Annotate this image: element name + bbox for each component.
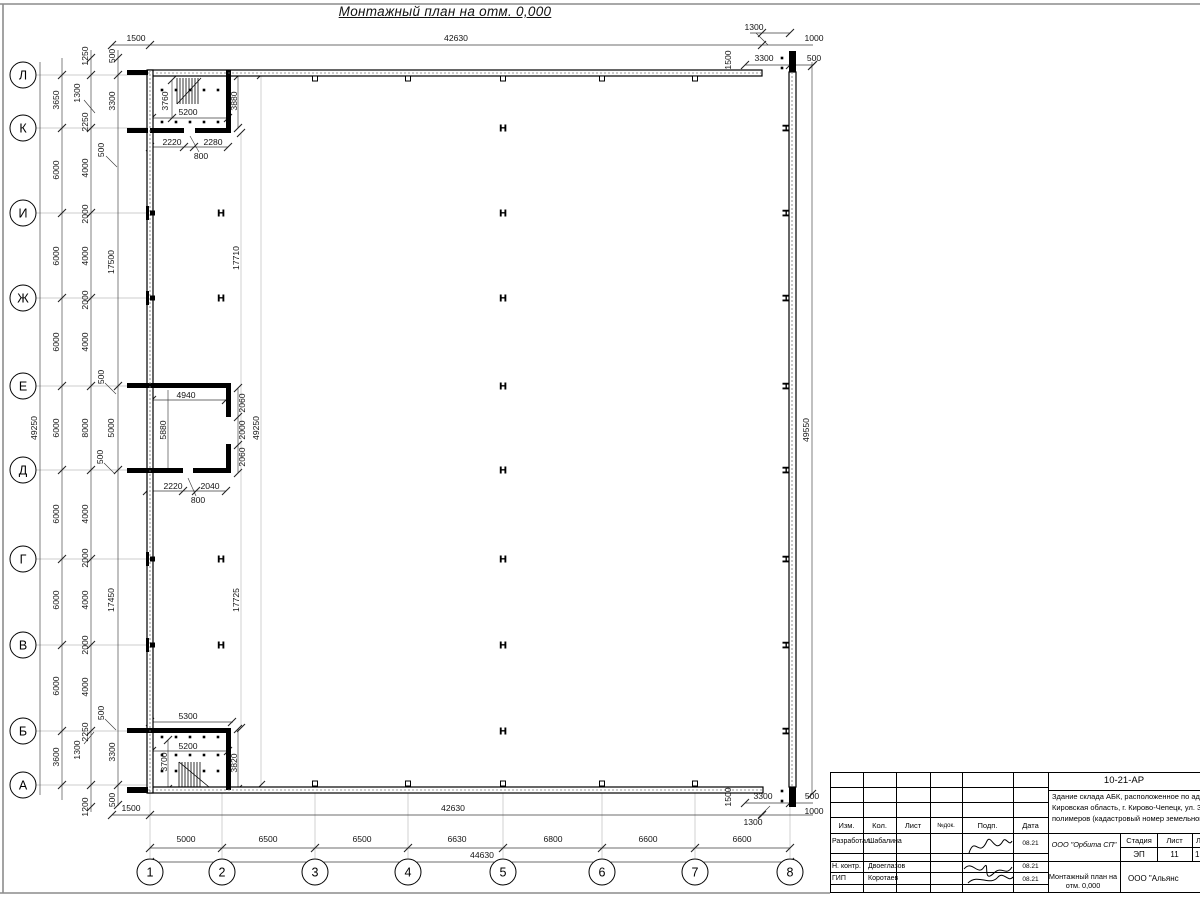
dim-label: 4000	[80, 158, 90, 177]
column-h-icon: H	[499, 727, 507, 738]
column-tab	[313, 781, 318, 786]
dim-label: 5880	[158, 420, 168, 439]
dim-label: 1300	[743, 817, 762, 827]
dim-label: 3300	[753, 791, 772, 801]
dim-label: 500	[805, 791, 820, 801]
wall-segment	[226, 388, 231, 417]
dim-label: 42630	[441, 803, 465, 813]
axis-label: 6	[599, 865, 606, 879]
wall-segment	[127, 383, 148, 388]
dim-label: 500	[95, 450, 105, 465]
dim-label: 3760	[160, 91, 170, 110]
dim-label: 4940	[176, 390, 195, 400]
column-h-icon: H	[499, 466, 507, 477]
column-h-icon: H	[499, 124, 507, 135]
dimension-lines	[40, 33, 813, 862]
column-h-icon: H	[780, 382, 791, 390]
dim-label: 49550	[801, 418, 811, 442]
column-h-icon: H	[780, 641, 791, 649]
wall-pilaster	[150, 643, 155, 648]
dim-label: 2000	[237, 420, 247, 439]
dim-label: 42630	[444, 33, 468, 43]
column-h-icon: H	[217, 641, 225, 652]
wall-segment	[789, 51, 796, 72]
dim-label: 6000	[51, 504, 61, 523]
dim-label: 3600	[51, 747, 61, 766]
wall-pilaster	[146, 638, 149, 652]
column-h-icon: H	[780, 124, 791, 132]
stairs	[177, 78, 209, 787]
column-h-icon: H	[499, 209, 507, 220]
dim-label: 800	[191, 495, 206, 505]
dim-label: 6000	[51, 676, 61, 695]
axis-label: Ж	[17, 291, 29, 305]
dimension-ticks	[58, 29, 817, 866]
axis-label: 5	[500, 865, 507, 879]
dim-label: 1500	[723, 50, 733, 69]
walls	[127, 51, 796, 807]
dim-label: 5000	[106, 418, 116, 437]
axis-label: Б	[19, 724, 27, 738]
column-tab	[406, 76, 411, 81]
dim-label: 4000	[80, 332, 90, 351]
axis-label: Е	[19, 379, 27, 393]
dim-label: 6500	[352, 834, 371, 844]
wall-outline	[789, 72, 796, 787]
column-tab	[600, 76, 605, 81]
wall-pilaster	[150, 296, 155, 301]
dim-label: 4000	[80, 590, 90, 609]
column-tab	[501, 76, 506, 81]
dim-label: 1000	[804, 806, 823, 816]
column-h-icon: H	[780, 727, 791, 735]
column-h-icon: H	[499, 294, 507, 305]
column-h-icon: H	[780, 209, 791, 217]
wall-segment	[127, 70, 148, 75]
wall-segment	[195, 128, 228, 133]
wall-segment	[789, 787, 796, 807]
wall-pilaster	[150, 211, 155, 216]
dim-label: 3300	[107, 742, 117, 761]
dim-label: 500	[807, 53, 822, 63]
column-tab	[406, 781, 411, 786]
axis-label: 2	[219, 865, 226, 879]
dim-label: 3300	[754, 53, 773, 63]
dim-label: 1250	[80, 46, 90, 65]
drawing-title: Монтажный план на отм. 0,000	[260, 4, 630, 19]
column-h-icon: H	[499, 382, 507, 393]
dim-label: 1300	[744, 22, 763, 32]
dim-label: 1500	[121, 803, 140, 813]
dim-label: 6000	[51, 418, 61, 437]
dim-label: 4000	[80, 677, 90, 696]
axis-label: Г	[20, 552, 27, 566]
dim-label: 2000	[80, 635, 90, 654]
column-tab	[693, 781, 698, 786]
wall-segment	[147, 468, 183, 473]
axis-label: А	[19, 778, 28, 792]
dim-label: 17725	[231, 588, 241, 612]
axis-label: В	[19, 638, 27, 652]
wall-segment	[127, 468, 148, 473]
dim-label: 17450	[106, 588, 116, 612]
dim-label: 6600	[732, 834, 751, 844]
column-h-icon: H	[217, 209, 225, 220]
dim-label: 2060	[237, 393, 247, 412]
dim-label: 500	[107, 793, 117, 808]
dim-label: 6600	[638, 834, 657, 844]
wall-pilaster	[146, 552, 149, 566]
dim-label: 17500	[106, 250, 116, 274]
axis-label: 3	[312, 865, 319, 879]
dim-label: 3300	[107, 91, 117, 110]
dim-label: 6800	[543, 834, 562, 844]
dim-label: 1000	[804, 33, 823, 43]
dim-label: 2060	[237, 447, 247, 466]
dim-label: 2220	[163, 481, 182, 491]
column-tab	[501, 781, 506, 786]
dim-label: 49250	[251, 416, 261, 440]
column-tab	[313, 76, 318, 81]
dim-label: 5000	[176, 834, 195, 844]
wall-segment	[127, 728, 148, 733]
dim-label: 1300	[72, 740, 82, 759]
wall-segment	[127, 787, 148, 793]
wall-segment	[147, 728, 231, 733]
dim-label: 4000	[80, 246, 90, 265]
dim-label: 17710	[231, 246, 241, 270]
column-h-icon: H	[499, 641, 507, 652]
axis-label: Д	[19, 463, 28, 477]
wall-pilaster	[150, 557, 155, 562]
dim-label: 500	[96, 370, 106, 385]
column-tab	[600, 781, 605, 786]
column-h-icon: H	[780, 294, 791, 302]
dim-label: 3880	[229, 91, 239, 110]
column-h-icon: H	[780, 555, 791, 563]
dim-label: 2220	[162, 137, 181, 147]
column-h-icon: H	[499, 555, 507, 566]
dim-label: 500	[96, 143, 106, 158]
dim-label: 6000	[51, 332, 61, 351]
dim-label: 500	[96, 706, 106, 721]
dim-label: 2250	[80, 722, 90, 741]
axis-label: Л	[19, 68, 27, 82]
wall-segment	[150, 128, 184, 133]
axis-label: К	[19, 121, 27, 135]
dim-label: 5200	[178, 107, 197, 117]
axis-bubbles: ЛКИЖЕДГВБА12345678	[10, 62, 803, 885]
dim-label: 2250	[80, 112, 90, 131]
dim-label: 8000	[80, 418, 90, 437]
wall-segment	[127, 128, 148, 133]
wall-pilaster	[146, 291, 149, 305]
dim-label: 6000	[51, 246, 61, 265]
column-tab	[693, 76, 698, 81]
dim-label: 5200	[178, 741, 197, 751]
dim-label: 2040	[200, 481, 219, 491]
dim-label: 6630	[447, 834, 466, 844]
wall-pilaster	[146, 206, 149, 220]
dim-label: 2280	[203, 137, 222, 147]
axis-label: 1	[147, 865, 154, 879]
dim-label: 4000	[80, 504, 90, 523]
dim-label: 6500	[258, 834, 277, 844]
axis-label: 8	[787, 865, 794, 879]
dim-label: 2000	[80, 204, 90, 223]
wall-segment	[193, 468, 231, 473]
axis-label: 4	[405, 865, 412, 879]
column-h-icon: H	[217, 555, 225, 566]
dim-label: 500	[107, 49, 117, 64]
dim-label: 1500	[723, 787, 733, 806]
dim-label: 2000	[80, 290, 90, 309]
dim-label: 1500	[126, 33, 145, 43]
dim-label: 44630	[470, 850, 494, 860]
dim-label: 6000	[51, 160, 61, 179]
dim-label: 5300	[178, 711, 197, 721]
wall-segment	[148, 383, 231, 388]
dim-label: 3700	[159, 752, 169, 771]
axis-label: 7	[692, 865, 699, 879]
column-h-icon: H	[780, 466, 791, 474]
dim-label: 2000	[80, 548, 90, 567]
dim-label: 3820	[229, 753, 239, 772]
wall-column-tabs	[313, 76, 698, 786]
dim-label: 800	[194, 151, 209, 161]
dim-label: 1300	[72, 83, 82, 102]
dim-label: 3650	[51, 90, 61, 109]
dim-label: 6000	[51, 590, 61, 609]
sheet: HHHHHHHHHHHHHHHHHHHH15004263013001000330…	[0, 0, 1200, 900]
dim-label: 49250	[29, 416, 39, 440]
plan-drawing: HHHHHHHHHHHHHHHHHHHH15004263013001000330…	[0, 0, 1200, 900]
dim-label: 1200	[80, 797, 90, 816]
axis-label: И	[19, 206, 28, 220]
column-h-icon: H	[217, 294, 225, 305]
